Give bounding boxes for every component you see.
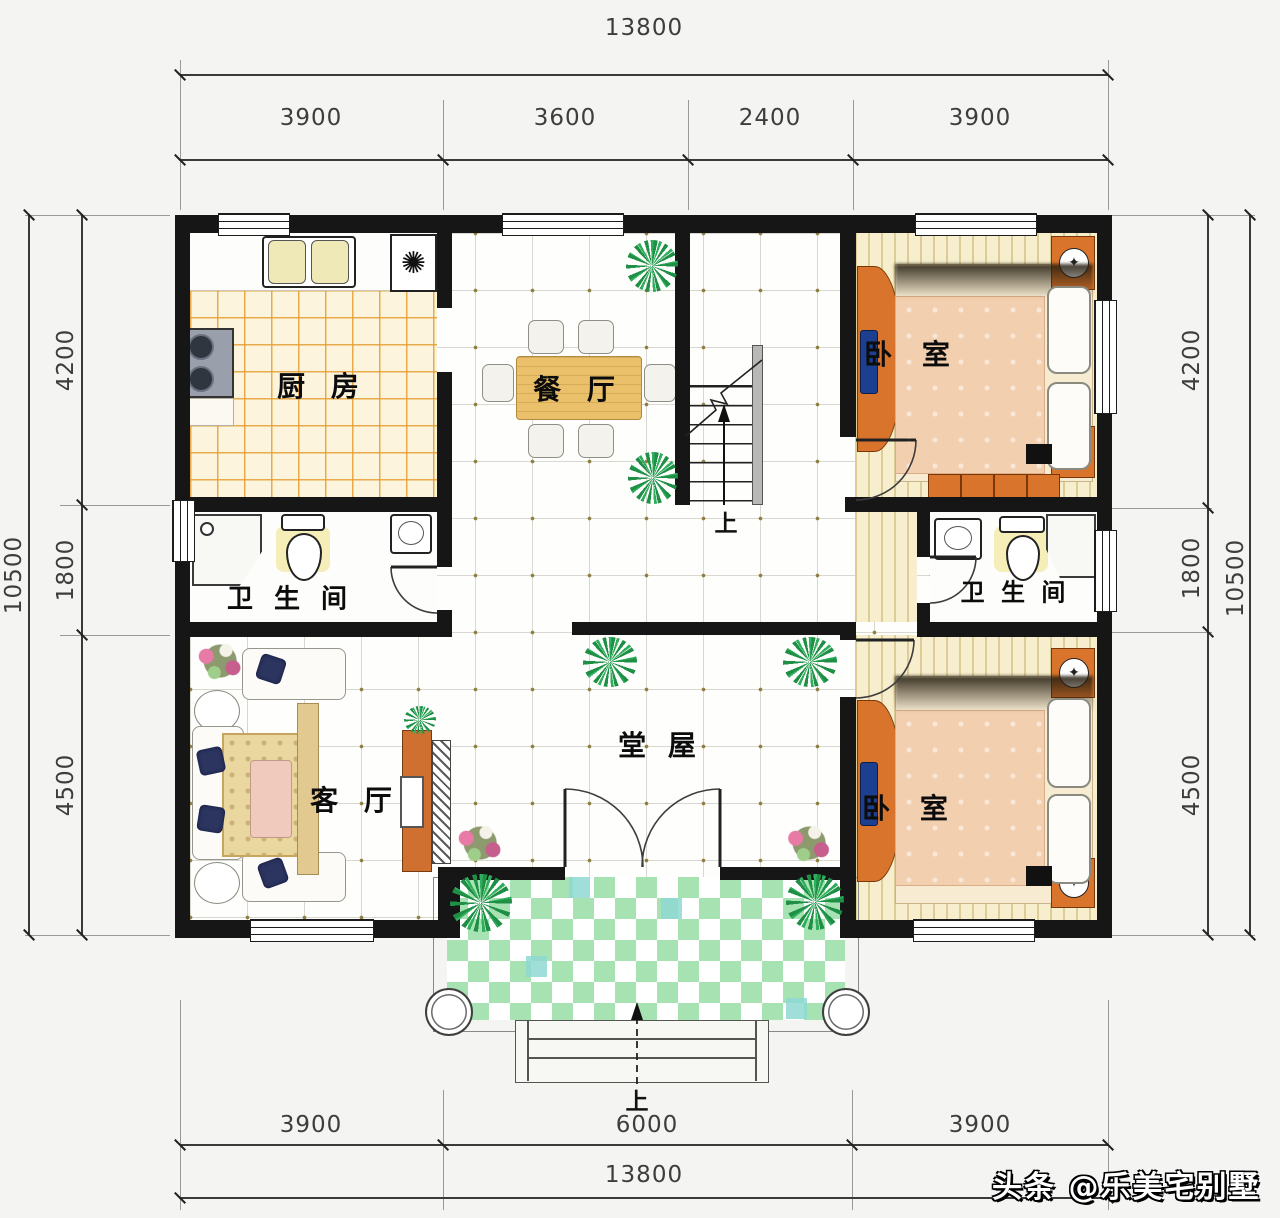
plant-icon bbox=[626, 240, 678, 292]
bed-pillow bbox=[1047, 698, 1091, 788]
extension-line bbox=[1108, 60, 1109, 210]
dim-top-seg-3: 3900 bbox=[949, 105, 1012, 131]
stairs-handrail bbox=[752, 345, 763, 505]
room-label-hall: 堂 屋 bbox=[618, 724, 702, 764]
flower-pot-icon bbox=[190, 638, 248, 686]
toilet-tank-icon bbox=[281, 514, 325, 531]
side-table bbox=[194, 862, 240, 904]
step-line bbox=[527, 1020, 529, 1081]
sink-basin-icon bbox=[311, 240, 349, 284]
tv-icon bbox=[400, 776, 424, 828]
extension-line bbox=[1112, 215, 1255, 216]
dim-left-seg-1: 1800 bbox=[53, 539, 79, 602]
extension-line bbox=[25, 215, 170, 216]
dim-line bbox=[180, 1144, 1108, 1146]
step-line bbox=[755, 1020, 757, 1081]
room-label-living: 客 厅 bbox=[310, 779, 400, 819]
stove-burner-icon bbox=[188, 334, 214, 360]
dim-line bbox=[180, 1197, 1108, 1199]
window bbox=[172, 500, 195, 562]
watermark-text: 头条 @乐美宅别墅 bbox=[992, 1162, 1260, 1206]
room-label-bathroom-right: 卫 生 间 bbox=[961, 573, 1070, 608]
bed-pillow bbox=[1047, 382, 1091, 470]
stove-burner-icon bbox=[188, 366, 214, 392]
plant-icon bbox=[450, 874, 512, 932]
window bbox=[1094, 530, 1117, 612]
wall bbox=[675, 233, 690, 505]
dim-bottom-seg-0: 3900 bbox=[280, 1112, 343, 1138]
wall bbox=[840, 233, 856, 437]
entry-steps bbox=[515, 1020, 769, 1083]
extension-line bbox=[180, 60, 181, 210]
room-label-bedroom-bottom: 卧 室 bbox=[862, 787, 958, 827]
tv-feature-wall bbox=[432, 740, 451, 864]
plant-icon bbox=[628, 452, 678, 504]
tv-remote-box bbox=[1026, 444, 1052, 464]
extension-line bbox=[180, 1000, 181, 1210]
dim-right-total: 10500 bbox=[1223, 539, 1249, 617]
dining-chair bbox=[528, 320, 564, 354]
dressing-nook-floor bbox=[855, 512, 917, 622]
flower-pot-icon bbox=[780, 820, 836, 868]
window bbox=[218, 213, 290, 236]
tv-remote-box bbox=[1026, 866, 1052, 886]
window bbox=[502, 213, 624, 236]
extension-line bbox=[852, 1090, 853, 1210]
flower-pot-icon bbox=[450, 820, 508, 868]
dining-chair bbox=[578, 320, 614, 354]
porch-column bbox=[425, 988, 473, 1036]
porch-teal-tile bbox=[569, 877, 590, 898]
bed-blanket bbox=[895, 296, 1045, 474]
dim-right-seg-1: 1800 bbox=[1179, 537, 1205, 600]
washbasin-bowl-icon bbox=[944, 526, 972, 550]
dining-chair bbox=[578, 424, 614, 458]
wall bbox=[845, 497, 1112, 512]
plant-icon bbox=[404, 706, 436, 734]
entry-up-label: 上 bbox=[626, 1082, 649, 1116]
dim-line bbox=[1207, 215, 1209, 935]
dim-line bbox=[28, 215, 30, 935]
dining-chair bbox=[482, 364, 514, 402]
dim-line bbox=[180, 74, 1108, 76]
stairs-up-label: 上 bbox=[715, 504, 738, 538]
wall bbox=[437, 512, 452, 567]
wall bbox=[437, 610, 452, 637]
wall bbox=[175, 622, 452, 637]
dim-bottom-seg-2: 3900 bbox=[949, 1112, 1012, 1138]
plant-icon bbox=[786, 874, 844, 930]
dim-line bbox=[180, 159, 1108, 161]
porch-teal-tile bbox=[661, 898, 682, 919]
extension-line bbox=[1112, 632, 1212, 633]
stairs bbox=[690, 385, 754, 507]
extension-line bbox=[1112, 508, 1212, 509]
sofa-cushion bbox=[196, 804, 226, 834]
dim-top-seg-2: 2400 bbox=[739, 105, 802, 131]
dining-chair bbox=[528, 424, 564, 458]
room-label-kitchen: 厨 房 bbox=[277, 365, 367, 405]
extension-line bbox=[853, 100, 854, 210]
window bbox=[913, 919, 1035, 942]
plant-icon bbox=[583, 637, 637, 687]
step-line bbox=[527, 1038, 755, 1040]
wall bbox=[175, 497, 452, 512]
dining-chair bbox=[644, 364, 676, 402]
floor-plan-canvas: ✺ ✦ ✦ bbox=[0, 0, 1280, 1218]
dim-line bbox=[1249, 215, 1251, 935]
room-label-dining: 餐 厅 bbox=[533, 368, 623, 408]
bed-pillow bbox=[1047, 286, 1091, 374]
wall bbox=[437, 372, 452, 497]
washbasin-bowl-icon bbox=[398, 521, 424, 545]
low-cabinet-row bbox=[928, 474, 1060, 498]
dim-left-total: 10500 bbox=[1, 536, 27, 614]
extension-line bbox=[443, 1090, 444, 1210]
wall bbox=[917, 622, 1112, 637]
wall bbox=[917, 512, 930, 557]
window bbox=[1094, 300, 1117, 414]
sink-basin-icon bbox=[268, 240, 306, 284]
extension-line bbox=[688, 100, 689, 210]
dim-left-seg-0: 4200 bbox=[53, 329, 79, 392]
dim-bottom-total: 13800 bbox=[605, 1162, 683, 1188]
extension-line bbox=[60, 505, 170, 506]
fridge-icon: ✺ bbox=[390, 234, 437, 292]
sofa-cushion bbox=[196, 746, 227, 777]
bed-pillow bbox=[1047, 794, 1091, 884]
room-label-bathroom-left: 卫 生 间 bbox=[227, 579, 353, 616]
wall bbox=[572, 622, 853, 635]
window bbox=[915, 213, 1037, 236]
plant-icon bbox=[783, 637, 837, 687]
extension-line bbox=[60, 635, 170, 636]
dim-left-seg-2: 4500 bbox=[53, 754, 79, 817]
toilet-tank-icon bbox=[999, 516, 1045, 533]
shower-head-icon bbox=[200, 522, 214, 536]
dim-top-seg-1: 3600 bbox=[534, 105, 597, 131]
coffee-table bbox=[250, 760, 292, 838]
window bbox=[250, 919, 374, 942]
dim-top-total: 13800 bbox=[605, 15, 683, 41]
dim-right-seg-0: 4200 bbox=[1179, 329, 1205, 392]
sofa bbox=[242, 852, 346, 902]
wall bbox=[437, 233, 452, 308]
dim-top-seg-0: 3900 bbox=[280, 105, 343, 131]
step-line bbox=[527, 1057, 755, 1059]
wall bbox=[175, 215, 190, 938]
dim-right-seg-2: 4500 bbox=[1179, 754, 1205, 817]
porch-teal-tile bbox=[786, 998, 807, 1019]
extension-line bbox=[443, 100, 444, 210]
extension-line bbox=[1112, 935, 1255, 936]
porch-column bbox=[822, 988, 870, 1036]
porch-teal-tile bbox=[526, 956, 547, 977]
dim-line bbox=[81, 215, 83, 935]
room-label-bedroom-top: 卧 室 bbox=[864, 333, 960, 373]
extension-line bbox=[25, 935, 170, 936]
